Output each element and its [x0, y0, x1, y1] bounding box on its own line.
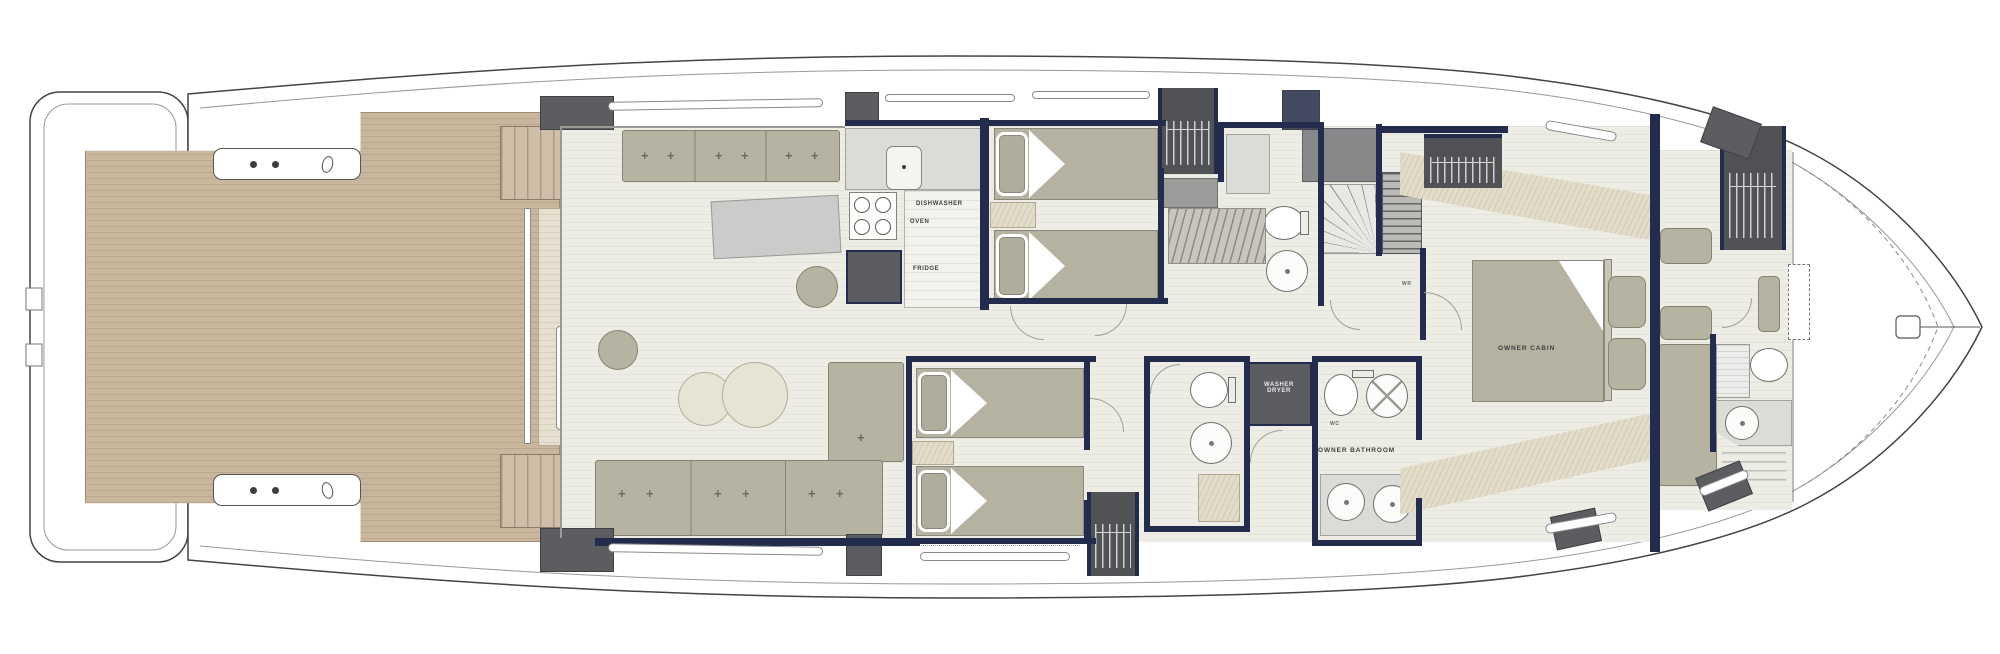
toilet-tank	[1228, 377, 1236, 403]
stitch	[646, 489, 654, 499]
pouf	[796, 266, 838, 308]
wall	[1144, 526, 1248, 532]
window-slot	[885, 94, 1015, 102]
wall	[1218, 122, 1224, 182]
wardrobe	[1424, 134, 1502, 188]
bow-toilet	[1750, 348, 1788, 382]
twin-bed	[994, 128, 1158, 200]
cleat-dot	[272, 487, 279, 494]
bow-sofa-cushion	[1660, 228, 1712, 264]
stitch	[618, 489, 626, 499]
galley-pantry	[904, 190, 982, 308]
stitch	[811, 151, 819, 161]
sink-round	[1190, 422, 1232, 464]
stitch	[785, 151, 793, 161]
galley-sink	[886, 146, 922, 190]
cleat-dot	[250, 161, 257, 168]
toilet	[1190, 372, 1228, 408]
wall	[1144, 356, 1248, 362]
stitch	[742, 489, 750, 499]
wall	[1244, 356, 1250, 532]
wall	[1318, 122, 1324, 306]
burner	[854, 219, 870, 235]
wall	[1214, 122, 1324, 128]
deck-hatch-outline	[1788, 264, 1810, 340]
owner-shower	[1366, 374, 1408, 418]
twin-bed	[994, 230, 1158, 302]
coffee-table-large	[722, 362, 788, 428]
wall	[1084, 500, 1090, 544]
bulkhead-block	[540, 96, 614, 130]
burner	[875, 197, 891, 213]
wall	[906, 356, 1096, 362]
bow-sofa-cushion	[1660, 306, 1712, 340]
pillow	[999, 237, 1025, 295]
wall	[1416, 498, 1422, 546]
owner-bulkhead	[1650, 114, 1660, 552]
toilet-tank	[1352, 370, 1374, 378]
sink-round	[1725, 406, 1759, 440]
twin-bed	[916, 466, 1084, 536]
oven-label: OVEN	[910, 219, 929, 225]
salon-aft-line	[560, 128, 562, 538]
wall	[1378, 126, 1508, 133]
shower-basin	[1266, 250, 1308, 292]
stitch	[667, 151, 675, 161]
fridge-label: FRIDGE	[913, 266, 939, 272]
salon-sofa-side	[828, 362, 904, 462]
wc-label: WC	[1330, 421, 1340, 427]
cleat-dot	[250, 487, 257, 494]
bathroom-vanity	[1226, 134, 1270, 194]
owner-bathroom-label: OWNER BATHROOM	[1318, 447, 1395, 454]
twin-bed	[916, 368, 1084, 438]
bulkhead-block	[540, 528, 614, 572]
stitch	[836, 489, 844, 499]
salon-sofa-top	[622, 130, 840, 182]
deck-hatch-top	[213, 148, 361, 180]
owner-bench	[1608, 338, 1646, 390]
stitch	[857, 433, 865, 443]
stitch	[641, 151, 649, 161]
wall	[984, 120, 1166, 126]
pillow	[921, 375, 947, 431]
wall	[906, 356, 912, 544]
wall	[906, 538, 1096, 544]
toilet	[1264, 206, 1304, 240]
burner	[854, 197, 870, 213]
wardrobe	[1158, 88, 1218, 174]
dimension-line	[915, 545, 1080, 547]
yacht-floor-plan: DISHWASHER OVEN FRIDGE WASHER DRYER WC O…	[0, 0, 2000, 654]
wall	[1312, 356, 1318, 546]
owner-bench	[1608, 276, 1646, 328]
deck-hatch-bottom	[213, 474, 361, 506]
wall	[1376, 124, 1382, 256]
galley-cabinet	[846, 250, 902, 304]
wall	[1158, 168, 1164, 304]
wall	[1144, 356, 1150, 532]
window-slot	[1032, 91, 1150, 99]
toilet-tank	[1300, 211, 1309, 235]
wall	[1312, 356, 1420, 362]
stair-landing	[1302, 128, 1378, 182]
pouf	[598, 330, 638, 370]
wall	[845, 120, 987, 126]
faucet	[902, 165, 906, 169]
pillow	[921, 473, 947, 529]
stitch	[715, 151, 723, 161]
washer-dryer-unit: WASHER DRYER	[1246, 362, 1312, 426]
wall	[984, 298, 1168, 304]
stitch	[714, 489, 722, 499]
salon-sofa-bottom	[595, 460, 883, 536]
cleat-oval	[320, 481, 335, 500]
wall	[980, 118, 989, 310]
stove	[849, 192, 897, 240]
bow-shower	[1716, 344, 1750, 398]
shower-grate	[1198, 474, 1240, 522]
wall	[1710, 334, 1716, 452]
stitch	[808, 489, 816, 499]
wall	[1416, 356, 1422, 440]
fan-stairs	[1320, 184, 1378, 254]
salon-table	[711, 195, 842, 260]
blanket-fold	[951, 468, 987, 534]
blanket-fold	[1559, 261, 1603, 331]
salon-top-line	[560, 126, 845, 128]
cleat-oval	[320, 155, 335, 174]
sliding-door	[524, 208, 531, 444]
wall	[1312, 540, 1422, 546]
stair-landing	[1160, 178, 1218, 208]
dryer-label: DRYER	[1248, 388, 1310, 394]
wardrobe-label: WR	[1402, 281, 1412, 287]
bow-vanity	[1716, 400, 1792, 446]
stitch	[741, 151, 749, 161]
bulkhead-block	[845, 92, 879, 122]
owner-cabin-label: OWNER CABIN	[1498, 345, 1555, 352]
blanket-fold	[1029, 130, 1065, 198]
dishwasher-label: DISHWASHER	[916, 201, 963, 207]
cleat-dot	[272, 161, 279, 168]
blanket-fold	[951, 370, 987, 436]
blanket-fold	[1029, 232, 1065, 300]
nightstand	[912, 441, 954, 465]
owner-toilet	[1324, 374, 1358, 416]
burner	[875, 219, 891, 235]
lower-deck-stairs	[1168, 208, 1266, 264]
pillow	[999, 135, 1025, 193]
nightstand	[990, 202, 1036, 228]
owner-bed	[1472, 260, 1604, 402]
bow-chaise	[1657, 344, 1717, 486]
window-slot	[920, 552, 1070, 561]
sink-round	[1327, 483, 1365, 521]
bow-seat	[1758, 276, 1780, 332]
wardrobe	[1087, 492, 1139, 576]
